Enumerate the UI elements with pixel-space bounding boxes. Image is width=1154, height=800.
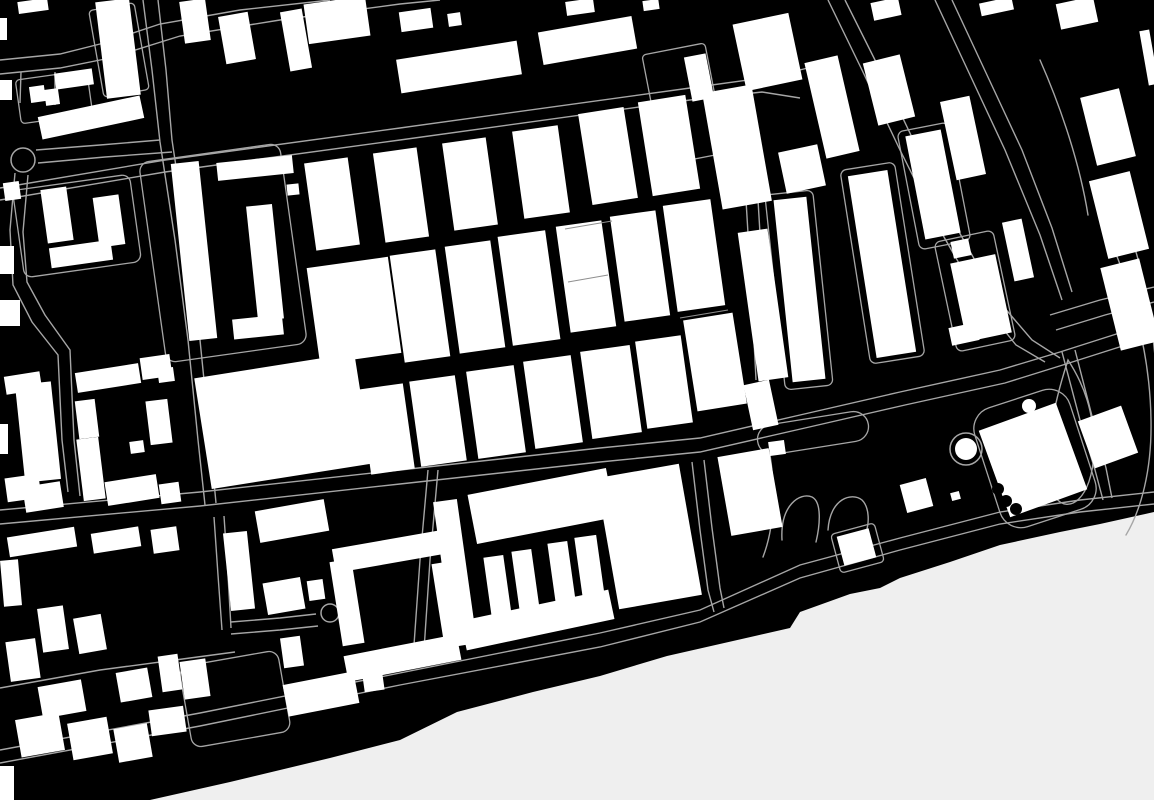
- building-footprint: [307, 257, 402, 364]
- building-footprint: [447, 12, 462, 27]
- figure-ground-map: [0, 0, 1154, 800]
- building-footprint: [159, 482, 182, 505]
- building-footprint: [148, 706, 186, 737]
- building-footprint: [768, 440, 786, 456]
- building-edge-notch: [1000, 495, 1012, 507]
- building-footprint: [0, 300, 20, 326]
- building-footprint: [150, 526, 179, 553]
- building-footprint: [263, 577, 306, 615]
- street-line: [20, 72, 21, 103]
- building-footprint: [3, 181, 21, 201]
- building-footprint: [286, 183, 299, 195]
- circular-building: [955, 438, 977, 460]
- building-footprint: [0, 246, 14, 274]
- building-footprint: [157, 367, 175, 383]
- building-edge-notch: [992, 483, 1004, 495]
- building-footprint: [0, 18, 7, 40]
- building-footprint: [0, 80, 12, 100]
- building-edge-notch: [1010, 503, 1022, 515]
- map-canvas: [0, 0, 1154, 800]
- building-footprint: [0, 424, 8, 454]
- building-footprint: [15, 712, 65, 757]
- building-footprint: [361, 666, 384, 693]
- building-footprint: [778, 144, 826, 193]
- building-footprint: [116, 667, 153, 702]
- building-footprint: [44, 88, 60, 106]
- building-footprint: [129, 440, 145, 454]
- building-footprint: [67, 717, 113, 760]
- building-footprint: [113, 723, 152, 762]
- building-footprint: [280, 636, 304, 668]
- building-footprint: [307, 579, 326, 601]
- building-footprint: [0, 766, 14, 800]
- building-footprint: [29, 85, 46, 103]
- circular-building: [1022, 399, 1036, 413]
- building-footprint: [179, 658, 210, 699]
- building-footprint: [5, 638, 40, 682]
